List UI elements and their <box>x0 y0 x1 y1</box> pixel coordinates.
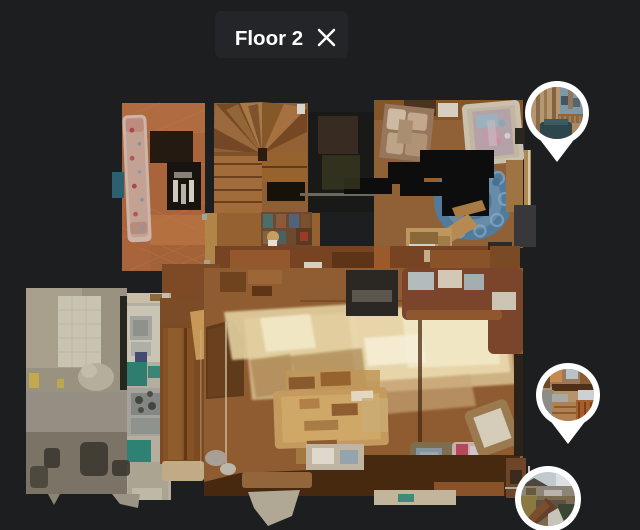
svg-text:Floor 2: Floor 2 <box>235 27 303 50</box>
